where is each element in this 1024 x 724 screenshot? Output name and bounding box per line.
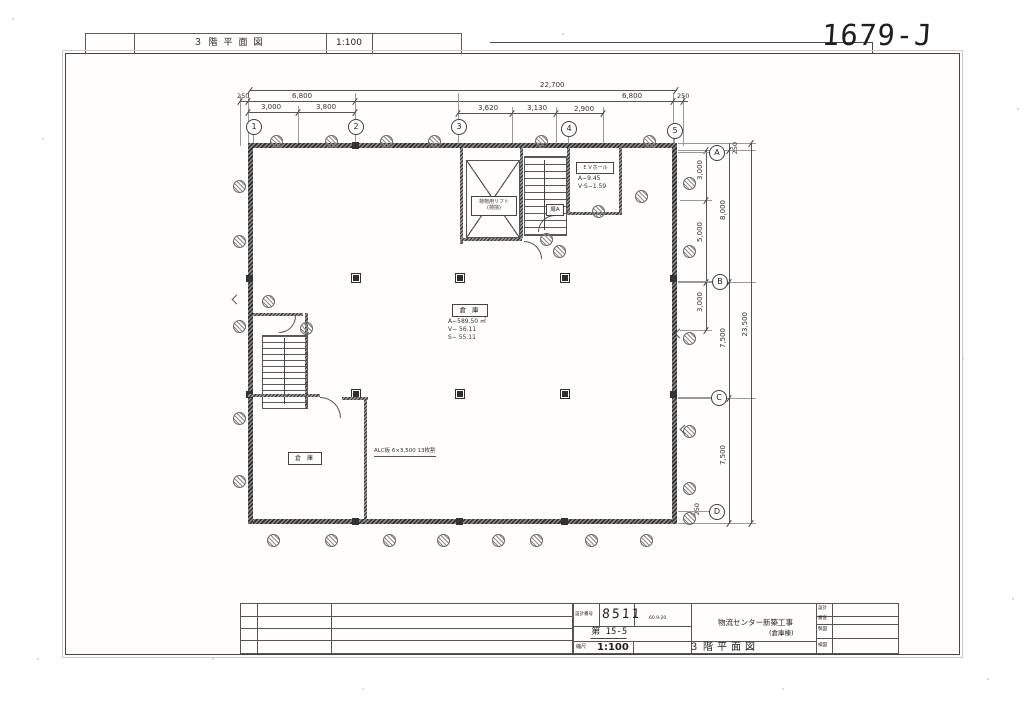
column-marker xyxy=(562,275,568,281)
vent-symbol xyxy=(267,534,280,547)
wall-left xyxy=(248,143,253,524)
dim-label: 3,620 xyxy=(478,105,498,112)
revision-table xyxy=(240,603,574,654)
grid-bubble-B: B xyxy=(712,274,728,290)
vent-symbol xyxy=(640,534,653,547)
dim-label: 250 xyxy=(237,93,249,100)
vent-symbol xyxy=(683,332,696,345)
grid-bubble-5: 5 xyxy=(667,123,683,139)
small-room-label: 倉 庫 xyxy=(288,452,322,465)
freight-lift-label-box: 荷物用リフト (荷捌) xyxy=(471,196,517,216)
center-room-label: 倉 庫 xyxy=(452,304,488,317)
vent-symbol xyxy=(383,534,396,547)
partition-wall xyxy=(619,148,622,215)
grid-bubble-1: 1 xyxy=(246,119,262,135)
tb-divider xyxy=(633,641,634,653)
dim-label: 250 xyxy=(694,503,701,515)
sheet-no: 第 15-5 xyxy=(591,628,628,639)
dim-line xyxy=(458,113,603,114)
vent-symbol xyxy=(233,475,246,488)
dim-label: 3,800 xyxy=(316,104,336,111)
dim-line xyxy=(240,101,688,102)
vent-symbol xyxy=(540,233,553,246)
vent-symbol xyxy=(233,180,246,193)
dim-line xyxy=(248,112,355,113)
stair-left xyxy=(262,335,308,409)
tb-row-line xyxy=(816,624,898,625)
vent-symbol xyxy=(325,135,338,148)
dim-label: 7,500 xyxy=(720,328,727,348)
dim-line xyxy=(729,143,730,523)
strike-line xyxy=(490,42,872,43)
dim-label: 2,900 xyxy=(574,106,594,113)
revision-row-line xyxy=(241,616,573,617)
vent-symbol xyxy=(380,135,393,148)
bubble-leader xyxy=(678,397,711,398)
drawing-scale: 1:100 xyxy=(327,39,371,48)
vent-symbol xyxy=(233,320,246,333)
doc-number: 1679-J xyxy=(821,18,934,52)
vent-symbol xyxy=(325,534,338,547)
vent-symbol xyxy=(585,534,598,547)
bubble-leader xyxy=(678,511,710,512)
pilaster xyxy=(352,142,359,149)
ext-line xyxy=(680,200,712,201)
dim-label: 6,800 xyxy=(292,93,312,100)
pilaster xyxy=(352,518,359,525)
design-no: 8511 xyxy=(602,608,642,621)
vent-symbol xyxy=(437,534,450,547)
dim-label: 8,000 xyxy=(720,200,727,220)
center-room-v: V− 56.11 xyxy=(448,326,476,333)
dim-line xyxy=(250,90,677,91)
dim-label: 3,130 xyxy=(527,105,547,112)
vent-symbol xyxy=(270,135,283,148)
project-name: 物流センター新築工事 xyxy=(718,619,793,627)
alc-note: ALC板 6×3,500 13枚割 xyxy=(374,448,436,457)
dim-label: 250 xyxy=(732,142,739,154)
pilaster xyxy=(456,518,463,525)
grid-bubble-2: 2 xyxy=(348,119,364,135)
approval-label-3: 製図 xyxy=(818,628,827,633)
dim-label: 7,500 xyxy=(720,445,727,465)
dim-label: 3,000 xyxy=(697,160,704,180)
hall-area: A−9.45 xyxy=(578,175,601,182)
scan-noise xyxy=(12,18,14,20)
partition-wall xyxy=(460,148,463,244)
dim-line xyxy=(751,143,752,523)
tb-row-line xyxy=(573,641,691,642)
tb-divider xyxy=(599,604,600,626)
vent-symbol xyxy=(530,534,543,547)
dim-label: 6,800 xyxy=(622,93,642,100)
vent-symbol xyxy=(233,235,246,248)
revision-row-line xyxy=(241,640,573,641)
dim-label: 250 xyxy=(677,93,689,100)
vent-symbol xyxy=(683,425,696,438)
approval-label-4: 検図 xyxy=(818,644,827,649)
vent-symbol xyxy=(553,245,566,258)
scale-value: 1:100 xyxy=(597,643,629,653)
freight-lift-sublabel: (荷捌) xyxy=(472,205,516,211)
title-block: 設計番号 8511 60.9.20 第 15-5 縮尺 1:100 物流センター… xyxy=(572,603,899,654)
ext-line xyxy=(240,96,241,146)
vent-symbol xyxy=(535,135,548,148)
revision-row-line xyxy=(241,628,573,629)
door-tag: 扉A xyxy=(546,204,564,216)
vent-symbol xyxy=(683,512,696,525)
column-marker xyxy=(457,391,463,397)
tb-row-line xyxy=(816,616,898,617)
bubble-leader xyxy=(678,152,710,153)
vent-symbol xyxy=(492,534,505,547)
partition-wall xyxy=(364,397,367,522)
partition-wall xyxy=(567,148,570,215)
dim-label-overall: 22,700 xyxy=(540,82,565,89)
approval-label-1: 設計 xyxy=(818,607,827,612)
ext-line xyxy=(683,96,684,146)
tb-divider xyxy=(832,604,833,653)
vent-symbol xyxy=(262,295,275,308)
hall-label-box: ＥＶホール xyxy=(576,162,614,174)
vent-symbol xyxy=(643,135,656,148)
pilaster xyxy=(246,275,253,282)
dim-label: 3,000 xyxy=(261,104,281,111)
scale-label: 縮尺 xyxy=(576,645,586,650)
vent-symbol xyxy=(233,412,246,425)
hall-vs: V·S−1.59 xyxy=(578,183,606,190)
tb-row-line xyxy=(816,638,898,639)
column-marker xyxy=(457,275,463,281)
scanned-floor-plan-page: { "doc_number": "1679-J", "header_strip"… xyxy=(0,0,1024,724)
vent-symbol xyxy=(635,190,648,203)
center-room-area: A−589.50 ㎡ xyxy=(448,318,486,325)
design-date: 60.9.20 xyxy=(649,617,666,622)
grid-bubble-D: D xyxy=(709,504,725,520)
vent-symbol xyxy=(300,322,313,335)
drawing-title: ３階平面図 xyxy=(138,39,324,48)
dim-label: 3,000 xyxy=(697,292,704,312)
partition-wall xyxy=(520,148,523,238)
pilaster xyxy=(670,275,677,282)
vent-symbol xyxy=(428,135,441,148)
partition-wall xyxy=(248,394,320,397)
column-marker xyxy=(562,391,568,397)
project-sub: (倉庫棟) xyxy=(769,630,794,637)
grid-bubble-3: 3 xyxy=(451,119,467,135)
approval-label-2: 審査 xyxy=(818,617,827,622)
grid-bubble-4: 4 xyxy=(561,121,577,137)
dim-label: 23,500 xyxy=(742,312,749,337)
titleblock-drawing-title: ３階平面図 xyxy=(689,643,759,653)
dim-line xyxy=(706,150,707,330)
column-marker xyxy=(353,275,359,281)
ext-line xyxy=(680,330,712,331)
pilaster xyxy=(670,391,677,398)
center-room-s: S− 55.11 xyxy=(448,334,476,341)
vent-symbol xyxy=(592,205,605,218)
grid-bubble-C: C xyxy=(711,390,727,406)
partition-wall xyxy=(460,238,522,241)
dim-label: 5,000 xyxy=(697,222,704,242)
vent-symbol xyxy=(683,245,696,258)
tb-divider xyxy=(816,604,817,653)
vent-symbol xyxy=(683,482,696,495)
bubble-leader xyxy=(678,281,712,282)
ext-line xyxy=(678,143,756,144)
vent-symbol xyxy=(683,177,696,190)
pilaster xyxy=(561,518,568,525)
design-no-label: 設計番号 xyxy=(575,613,593,618)
grid-bubble-A: A xyxy=(709,145,725,161)
